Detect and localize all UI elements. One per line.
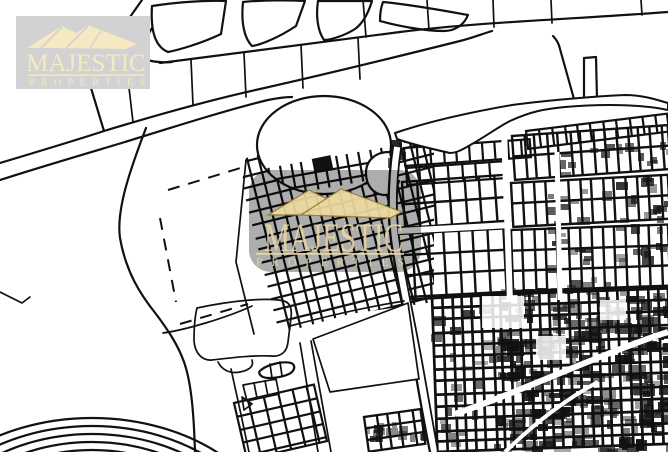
svg-text:MAJESTIC: MAJESTIC: [26, 50, 145, 77]
